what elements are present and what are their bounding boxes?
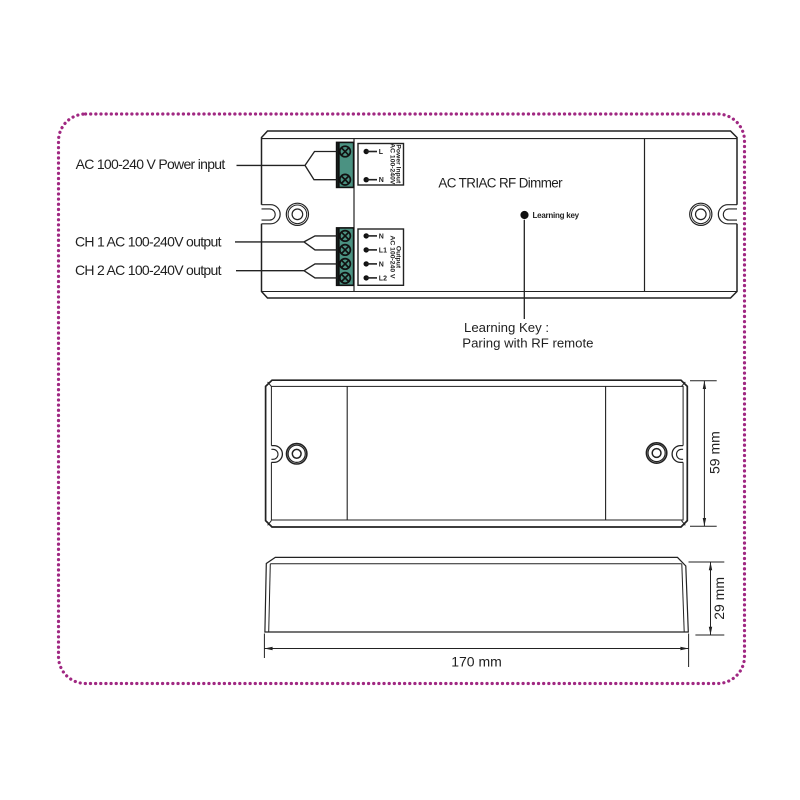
svg-text:L: L	[379, 149, 384, 156]
svg-text:CH 1 AC 100-240V output: CH 1 AC 100-240V output	[75, 233, 222, 249]
svg-text:CH 2 AC 100-240V output: CH 2 AC 100-240V output	[75, 262, 222, 278]
svg-text:L1: L1	[379, 247, 387, 254]
svg-text:AC TRIAC RF Dimmer: AC TRIAC RF Dimmer	[438, 176, 563, 191]
svg-text:AC 100-240 V: AC 100-240 V	[388, 235, 395, 279]
svg-text:N: N	[379, 177, 384, 184]
svg-text:Learning key: Learning key	[533, 211, 580, 220]
svg-text:AC 100-240 V Power input: AC 100-240 V Power input	[76, 156, 226, 172]
svg-text:29 mm: 29 mm	[711, 577, 727, 620]
svg-text:N: N	[379, 261, 384, 268]
svg-text:59 mm: 59 mm	[706, 431, 722, 474]
svg-text:170 mm: 170 mm	[451, 654, 502, 670]
svg-text:L2: L2	[379, 275, 387, 282]
svg-text:N: N	[379, 233, 384, 240]
svg-text:Learning Key :: Learning Key :	[464, 320, 549, 335]
svg-text:AC 100-240V: AC 100-240V	[388, 143, 395, 185]
svg-text:Paring with RF remote: Paring with RF remote	[462, 335, 593, 350]
